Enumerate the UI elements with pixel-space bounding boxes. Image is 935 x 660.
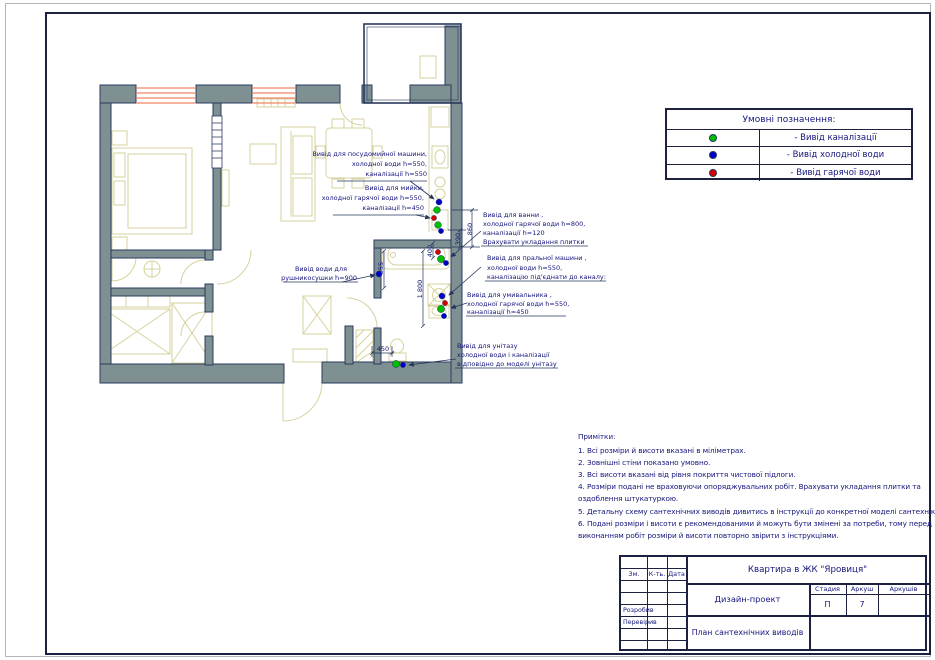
svg-text:холодної води h=550,: холодної води h=550, [487,264,562,272]
toilet-sewer-outlet [392,360,399,367]
annotation-towel-dryer: Вивід води для рушникосушки h=900 [281,265,357,282]
bath-sewer-outlet [437,255,444,262]
sheet-header: Аркуш [846,583,878,594]
svg-text:Вивід для унітазу: Вивід для унітазу [457,342,518,350]
svg-text:Вивід для ванни ,: Вивід для ванни , [483,211,543,219]
title-block: Зм. К-ть. Дата Розробив Перевірив Кварти… [619,555,927,651]
note-line: 2. Зовнішні стіни показано умовно. [578,457,930,469]
washbasin-hot-outlet [442,300,447,305]
stage-value: П [809,594,846,615]
sewer-dot-icon [709,134,717,142]
svg-text:холодної води h=550,: холодної води h=550, [352,160,427,168]
note-line: виконанням робіт розміри й висоти повтор… [578,530,930,542]
notes-block: Примітки: 1. Всі розміри й висоти вказан… [578,431,930,542]
legend-label-hot: - Вивід гарячої води [760,165,911,181]
col-qty-header: К-ть. [647,568,667,580]
svg-text:каналізації h=120: каналізації h=120 [483,229,545,237]
dim-1800: 1 800 [416,280,424,299]
svg-text:холодної води і каналізації: холодної води і каналізації [457,351,550,359]
svg-text:каналізації h=450: каналізації h=450 [467,308,529,316]
doc-type: Дизайн-проект [686,583,809,615]
notes-title: Примітки: [578,431,930,443]
sink-cold-outlet [438,228,443,233]
legend: Умовні позначення: - Вивід каналізації -… [665,108,913,180]
note-line: оздоблення штукатуркою. [578,493,930,505]
sink-hot-outlet [431,215,436,220]
washbasin-cold-outlet [441,313,446,318]
svg-text:холодної гарячої води h=550: холодної гарячої води h=550, [322,194,424,202]
svg-text:каналізації h=550: каналізації h=550 [365,170,427,178]
svg-text:Вивід для умивальника ,: Вивід для умивальника , [467,291,552,299]
annotation-dishwasher: Вивід для посудомийної машини, холодної … [312,150,427,178]
dim-400: 400 [426,245,434,257]
legend-row-cold: - Вивід холодної води [667,147,911,164]
stage-header: Стадия [809,583,846,594]
note-line: 4. Розміри подані не враховуючи опоряджу… [578,481,930,493]
svg-text:каналізацію під'єднати до кана: каналізацію під'єднати до каналу: [487,273,606,281]
svg-text:Вивід для пральної машини ,: Вивід для пральної машини , [487,254,587,262]
legend-row-sewer: - Вивід каналізації [667,130,911,147]
towel-dryer-outlet [376,271,382,277]
svg-text:Вивід для посудомийної машини: Вивід для посудомийної машини, [312,150,427,158]
toilet-cold-outlet [400,362,405,367]
col-date-header: Дата [667,568,686,580]
sheets-header: Аркушів [878,583,929,594]
dishwasher-sewer-outlet [434,207,441,214]
svg-text:холодної гарячої води h=550,: холодної гарячої води h=550, [467,300,569,308]
svg-text:Врахувати укладання плитки: Врахувати укладання плитки [483,238,585,246]
bath-hot-outlet [435,249,440,254]
washing-machine-cold-outlet [439,293,445,299]
dim-390: 390 [454,233,462,245]
note-line: 1. Всі розміри й висоти вказані в міліме… [578,445,930,457]
svg-text:відповідно до моделі унітазу: відповідно до моделі унітазу [457,360,557,368]
sheet-number: 7 [846,594,878,615]
drawing-sheet: 390 860 400 855 1 800 450 [0,0,935,660]
svg-text:Вивід для мийки,: Вивід для мийки, [365,184,424,192]
annotation-washing-machine: Вивід для пральної машини , холодної вод… [487,254,606,281]
sheet-title: План сантехнічних виводів [686,615,809,649]
annotation-toilet: Вивід для унітазу холодної води і каналі… [457,342,557,368]
svg-text:Вивід води для: Вивід води для [295,265,347,273]
outlet-points [376,199,449,368]
note-line: 6. Подані розміри і висоти є рекомендова… [578,518,930,530]
built-in-shelf [212,116,222,168]
cold-water-dot-icon [709,151,717,159]
annotation-bath: Вивід для ванни , холодної гарячої води … [483,211,585,246]
svg-text:рушникосушки h=900: рушникосушки h=900 [281,274,357,282]
legend-title: Умовні позначення: [667,110,911,130]
svg-text:холодної гарячої води h=8: холодної гарячої води h=800, [483,220,585,228]
legend-label-cold: - Вивід холодної води [760,147,911,163]
role-developed-label: Розробив [621,604,667,616]
annotation-washbasin: Вивід для умивальника , холодної гарячої… [467,291,569,316]
role-checked-label: Перевірив [621,616,667,628]
washbasin-sewer-outlet [437,305,444,312]
note-line: 3. Всі висоти вказані від рівня покриття… [578,469,930,481]
bath-cold-outlet [443,260,448,265]
dim-450: 450 [377,345,389,353]
dim-860: 860 [466,223,474,235]
legend-row-hot: - Вивід гарячої води [667,165,911,181]
col-change-header: Зм. [621,568,647,580]
legend-label-sewer: - Вивід каналізації [760,130,911,146]
dishwasher-cold-outlet [436,199,442,205]
svg-text:каналізації h=450: каналізації h=450 [362,204,424,212]
note-line: 5. Детальну схему сантехнічних виводів д… [578,506,930,518]
project-name: Квартира в ЖК "Яровиця" [686,557,929,583]
sink-sewer-outlet [435,222,442,229]
hot-water-dot-icon [709,169,717,177]
